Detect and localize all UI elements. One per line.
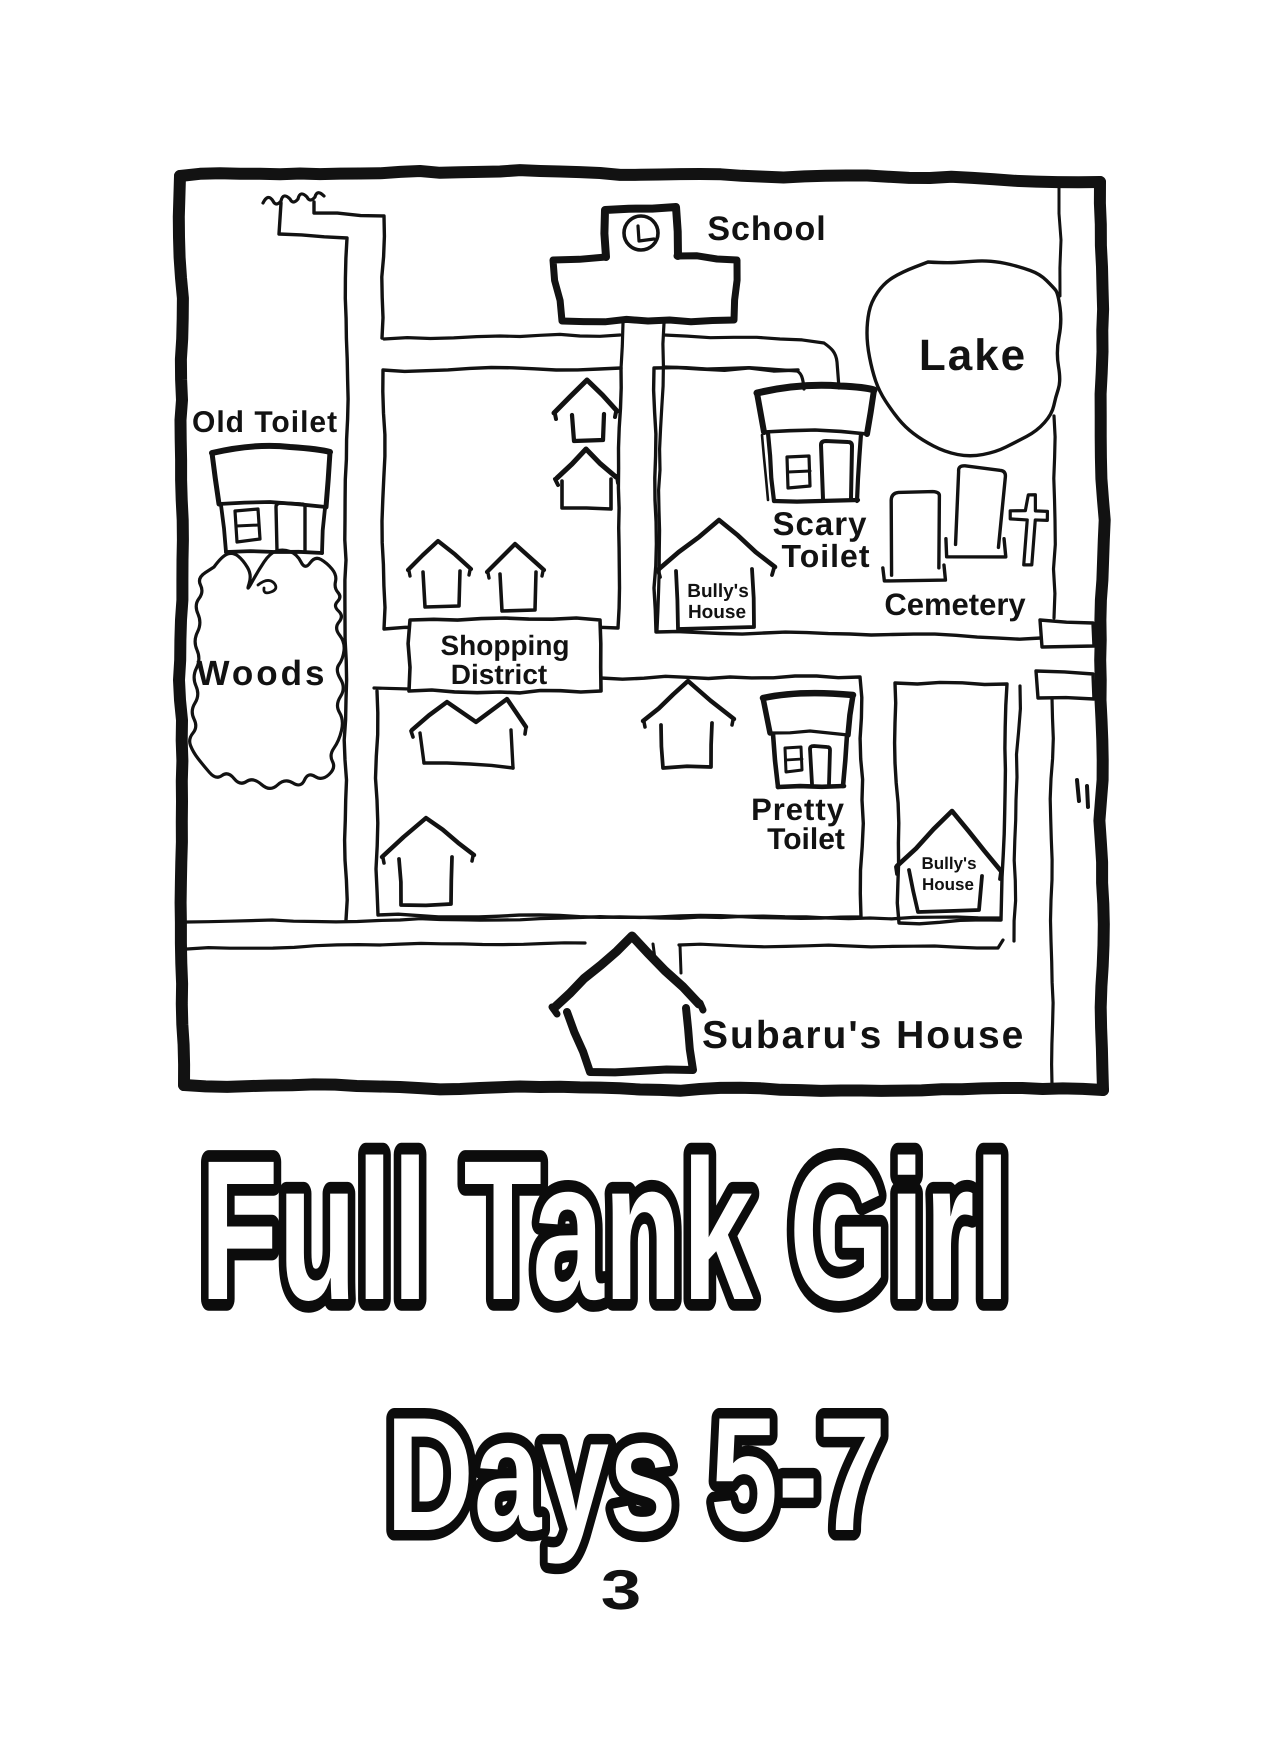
svg-text:Scary: Scary [773,505,868,542]
svg-text:3: 3 [601,1558,642,1621]
svg-text:Shopping: Shopping [440,630,569,661]
svg-text:Toilet: Toilet [782,538,871,574]
svg-text:School: School [707,210,826,248]
svg-text:Subaru's House: Subaru's House [702,1014,1025,1057]
svg-text:Lake: Lake [919,331,1027,380]
svg-text:House: House [688,602,746,623]
svg-text:Old Toilet: Old Toilet [192,406,338,439]
svg-text:Bully's: Bully's [921,854,976,873]
svg-text:Bully's: Bully's [687,581,749,602]
svg-text:Cemetery: Cemetery [884,587,1026,622]
svg-text:Pretty: Pretty [751,792,845,827]
svg-text:District: District [451,659,547,690]
svg-text:Woods: Woods [196,654,327,693]
svg-text:Toilet: Toilet [767,823,845,856]
svg-text:House: House [922,875,974,894]
svg-text:Days 5-7: Days 5-7 [386,1384,886,1565]
svg-text:Full Tank Girl: Full Tank Girl [200,1119,1010,1342]
